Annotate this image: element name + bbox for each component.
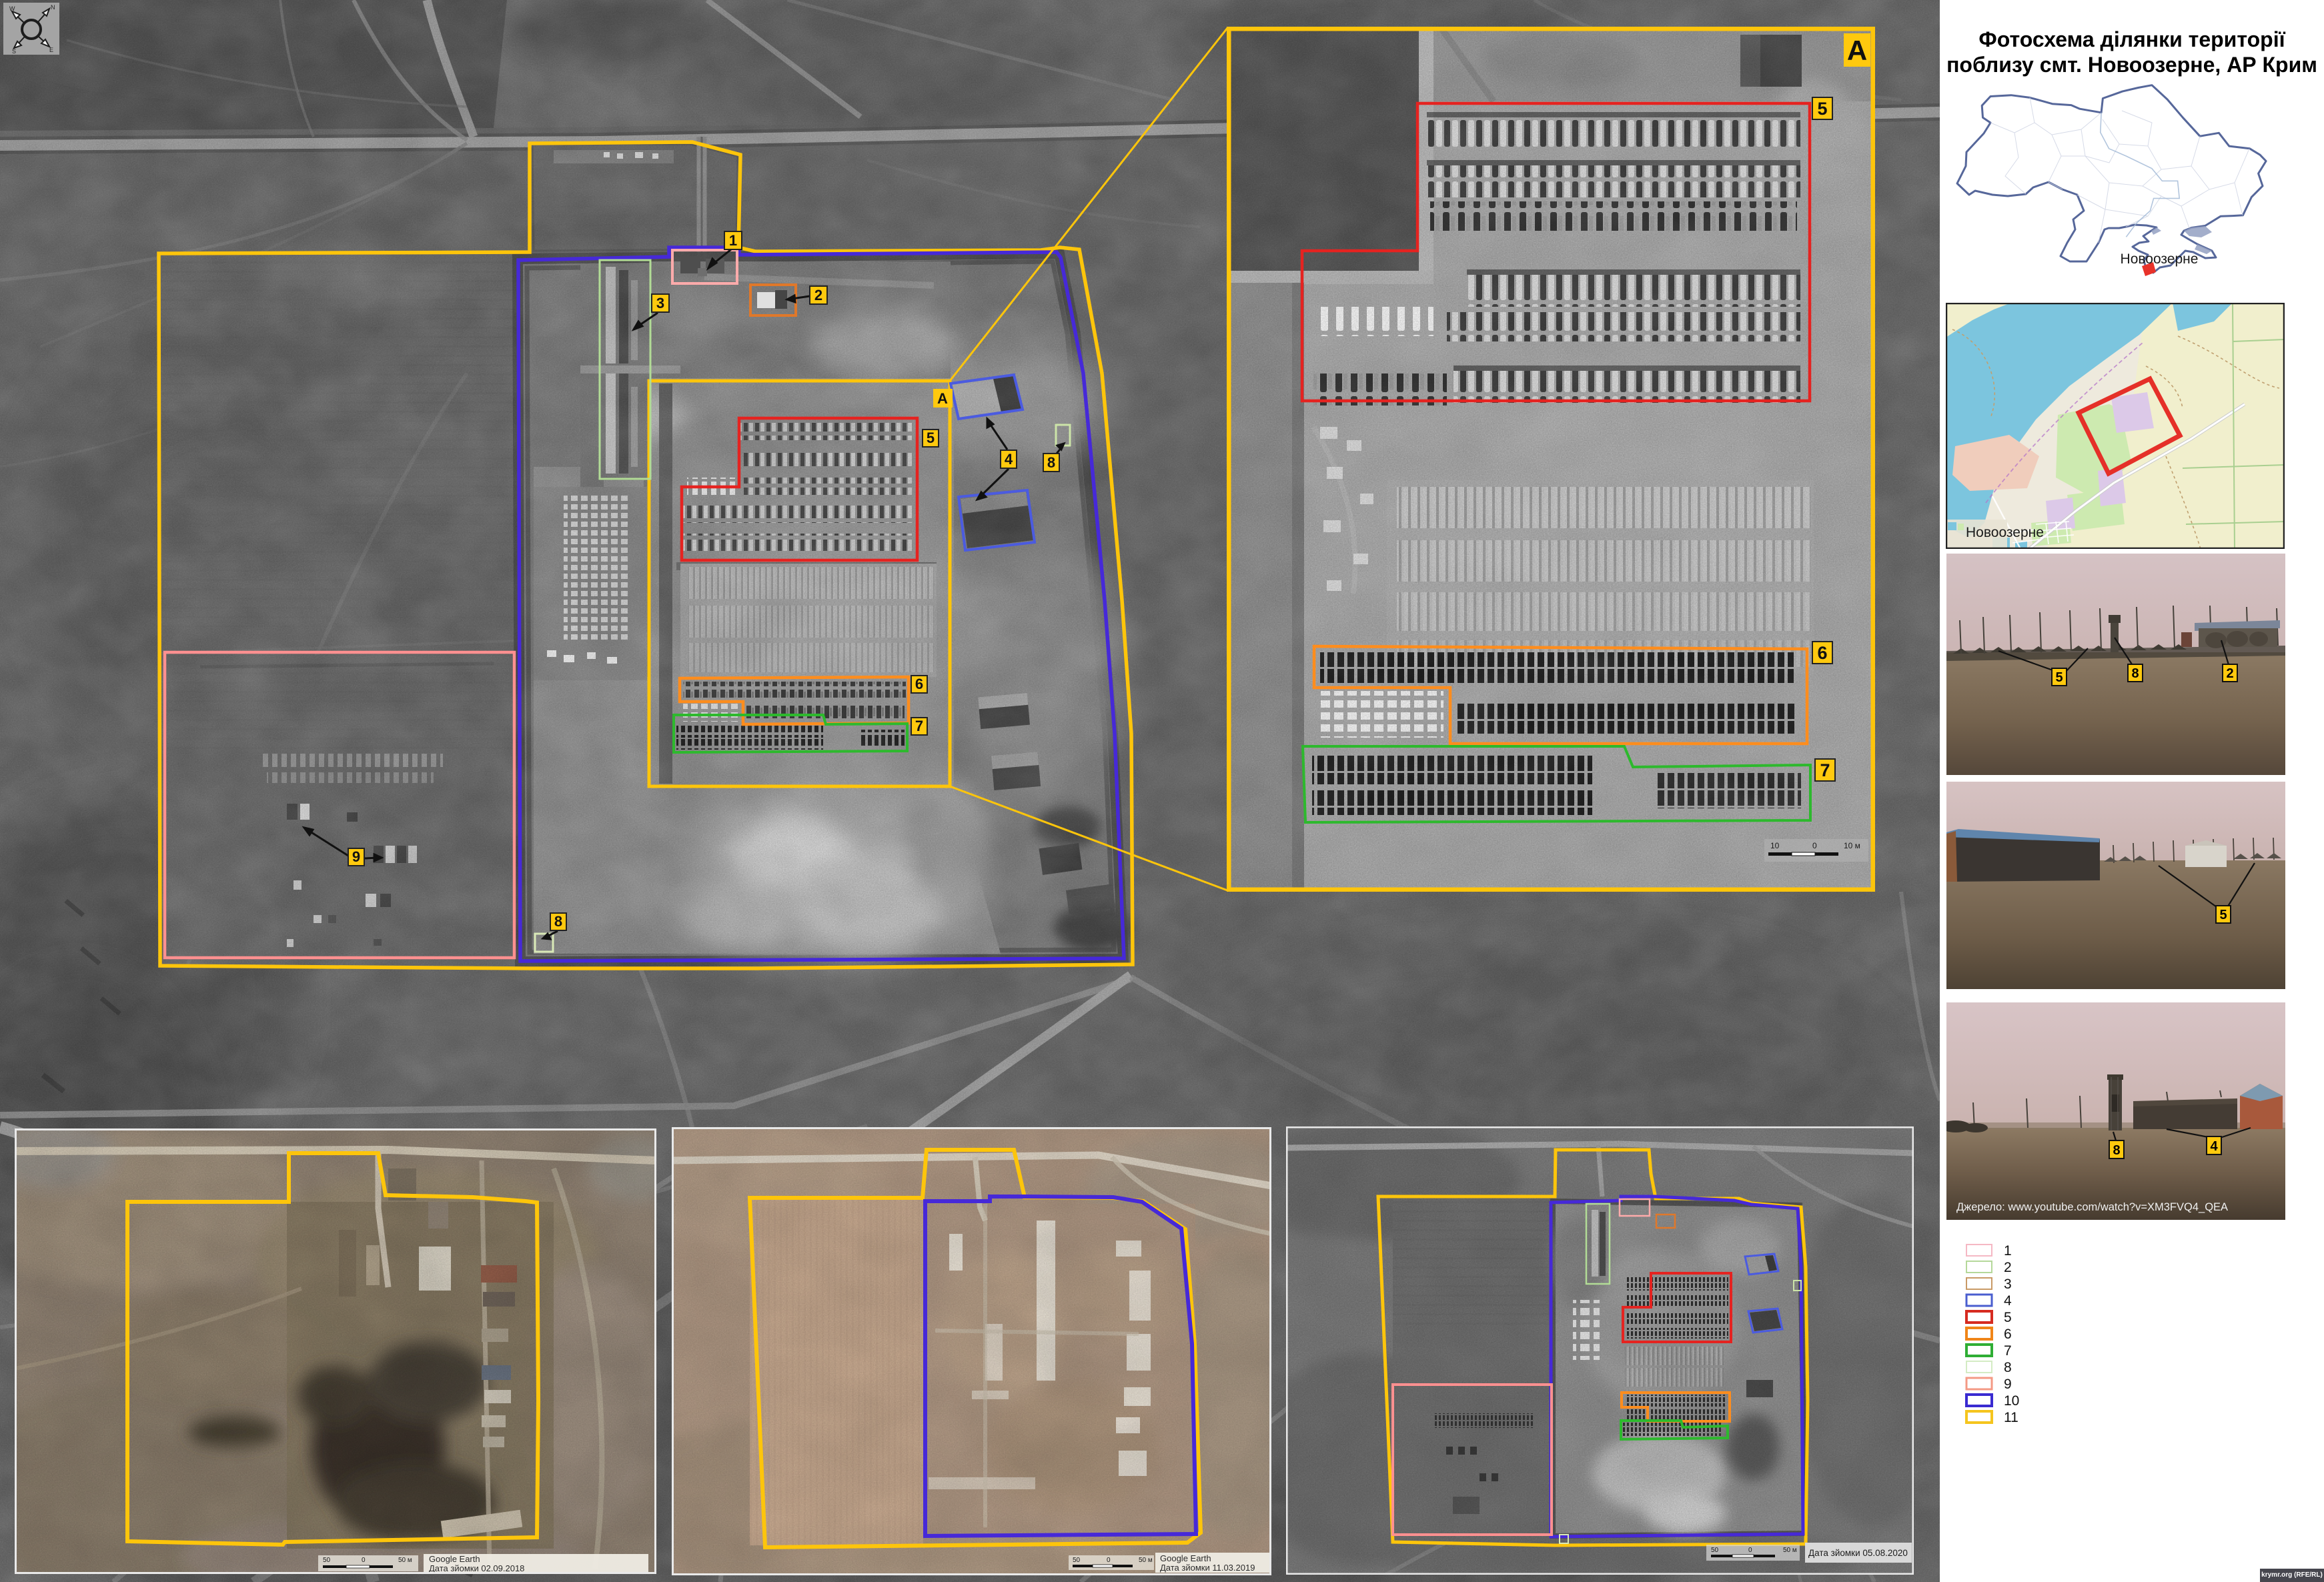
svg-text:N: N	[51, 4, 55, 11]
svg-text:6: 6	[1817, 643, 1827, 663]
svg-text:3: 3	[656, 295, 664, 311]
svg-text:7: 7	[2004, 1343, 2012, 1359]
svg-text:A: A	[937, 390, 948, 407]
svg-text:0: 0	[1812, 841, 1817, 850]
svg-text:5: 5	[2004, 1310, 2012, 1325]
svg-text:Google Earth: Google Earth	[1160, 1553, 1211, 1563]
svg-text:7: 7	[915, 718, 923, 734]
svg-text:0: 0	[1107, 1557, 1111, 1564]
svg-text:0: 0	[362, 1557, 366, 1564]
svg-text:E: E	[49, 47, 53, 53]
svg-text:9: 9	[2004, 1377, 2012, 1392]
svg-text:5: 5	[927, 430, 935, 446]
svg-text:4: 4	[1005, 451, 1013, 468]
svg-text:50: 50	[1073, 1557, 1081, 1564]
svg-text:Дата зйомки 11.03.2019: Дата зйомки 11.03.2019	[1160, 1563, 1255, 1573]
svg-text:2: 2	[2004, 1260, 2012, 1275]
svg-text:50 м: 50 м	[1783, 1547, 1797, 1554]
svg-text:8: 8	[2004, 1360, 2012, 1375]
svg-text:10: 10	[1770, 841, 1780, 850]
svg-text:1: 1	[729, 232, 737, 249]
svg-text:6: 6	[2004, 1327, 2012, 1342]
svg-text:9: 9	[352, 848, 360, 865]
svg-text:50 м: 50 м	[398, 1557, 412, 1564]
svg-text:6: 6	[915, 676, 923, 692]
svg-text:Дата зйомки 02.09.2018: Дата зйомки 02.09.2018	[429, 1563, 524, 1573]
svg-text:50: 50	[323, 1557, 331, 1564]
svg-text:4: 4	[2004, 1293, 2012, 1309]
svg-text:S: S	[12, 48, 16, 55]
svg-text:10 м: 10 м	[1844, 841, 1860, 850]
svg-text:2: 2	[814, 287, 822, 303]
svg-text:50: 50	[1711, 1547, 1719, 1554]
svg-text:7: 7	[1820, 760, 1830, 780]
svg-text:1: 1	[2004, 1243, 2012, 1259]
svg-text:8: 8	[554, 913, 562, 930]
svg-text:W: W	[9, 5, 15, 12]
svg-text:Дата зйомки 05.08.2020: Дата зйомки 05.08.2020	[1808, 1548, 1908, 1558]
svg-text:A: A	[1847, 35, 1867, 66]
svg-text:Google Earth: Google Earth	[429, 1554, 480, 1564]
svg-text:11: 11	[2004, 1410, 2018, 1425]
svg-text:3: 3	[2004, 1277, 2012, 1292]
svg-text:8: 8	[1047, 454, 1055, 471]
svg-text:5: 5	[1817, 99, 1827, 119]
svg-text:0: 0	[1748, 1547, 1752, 1554]
svg-text:10: 10	[2004, 1393, 2019, 1409]
svg-text:50 м: 50 м	[1139, 1557, 1153, 1564]
